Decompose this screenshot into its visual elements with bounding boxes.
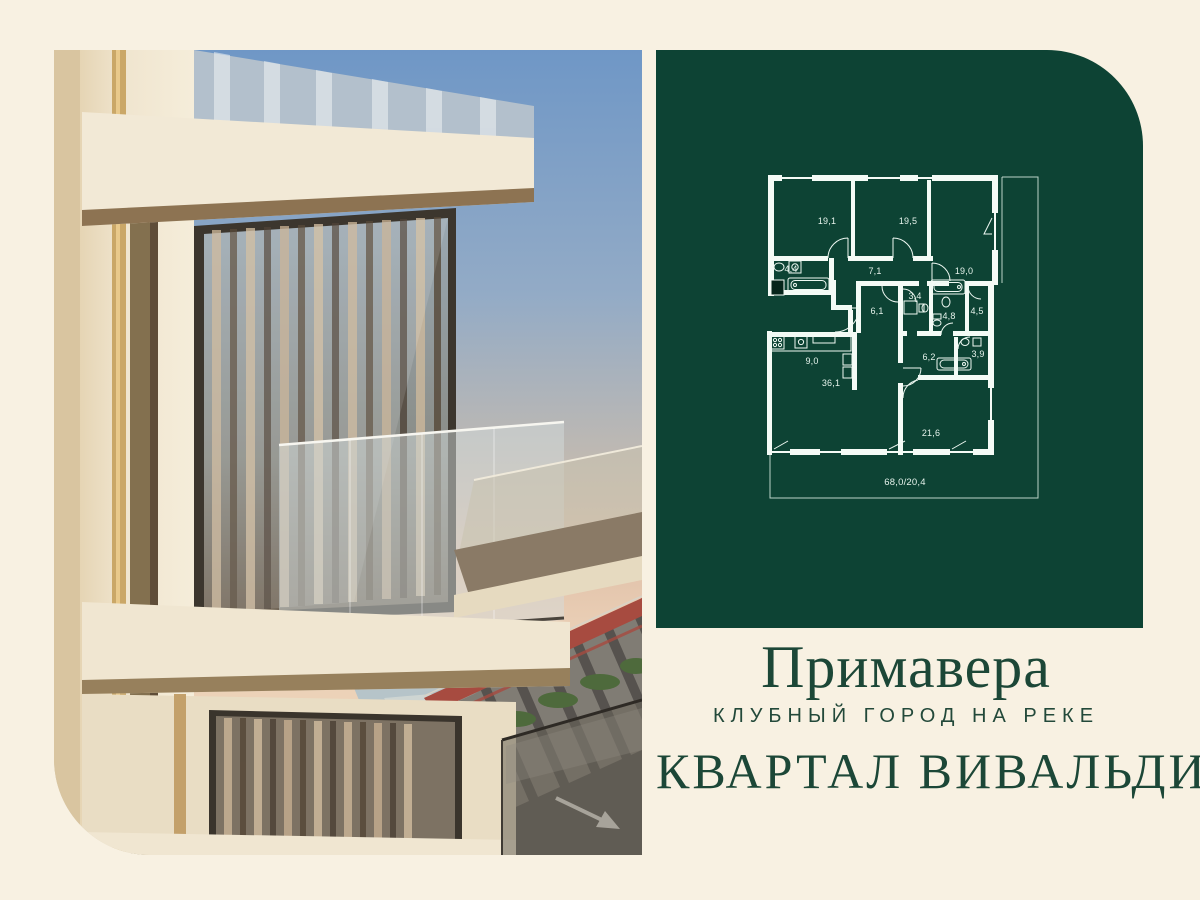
washer-icon — [973, 338, 981, 346]
bathtub-icon — [788, 278, 829, 292]
poster-canvas: 19,1 19,5 19,0 4,4 7,1 3,4 6,1 4,8 4,5 9… — [0, 0, 1200, 900]
room-area-label: 4,8 — [942, 311, 955, 321]
lower-floor — [82, 694, 516, 855]
room-area-label: 6,1 — [870, 306, 883, 316]
sink-icon — [774, 263, 784, 271]
room-area-label: 4,5 — [970, 306, 983, 316]
building-render-illustration — [54, 50, 642, 855]
project-subtitle: КЛУБНЫЙ ГОРОД НА РЕКЕ — [656, 705, 1156, 728]
room-area-label: 19,1 — [818, 216, 836, 226]
branding-block: Примавера КЛУБНЫЙ ГОРОД НА РЕКЕ КВАРТАЛ … — [656, 636, 1156, 800]
room-area-label: 19,5 — [899, 216, 917, 226]
shower-icon — [904, 301, 917, 314]
room-area-label: 4,4 — [784, 264, 797, 274]
shaft — [771, 280, 784, 295]
floorplan-drawing: 19,1 19,5 19,0 4,4 7,1 3,4 6,1 4,8 4,5 9… — [755, 168, 1045, 513]
room-area-label: 6,2 — [922, 352, 935, 362]
sink-icon — [961, 339, 969, 346]
total-area-label: 68,0/20,4 — [884, 477, 925, 488]
toilet-icon — [919, 304, 928, 312]
sink-icon — [942, 297, 950, 307]
toilet-icon — [933, 314, 941, 326]
room-area-label: 3,4 — [908, 291, 921, 301]
quarter-title: КВАРТАЛ ВИВАЛЬДИ — [656, 742, 1156, 800]
room-area-label: 21,6 — [922, 428, 940, 438]
project-title: Примавера — [656, 636, 1156, 699]
room-area-label: 19,0 — [955, 266, 973, 276]
interior-walls — [767, 180, 994, 455]
building-render-photo — [54, 50, 642, 855]
room-area-label: 9,0 — [805, 356, 818, 366]
floorplan-panel: 19,1 19,5 19,0 4,4 7,1 3,4 6,1 4,8 4,5 9… — [656, 50, 1143, 628]
room-area-label: 7,1 — [868, 266, 881, 276]
room-area-label: 36,1 — [822, 378, 840, 388]
room-area-label: 3,9 — [971, 349, 984, 359]
